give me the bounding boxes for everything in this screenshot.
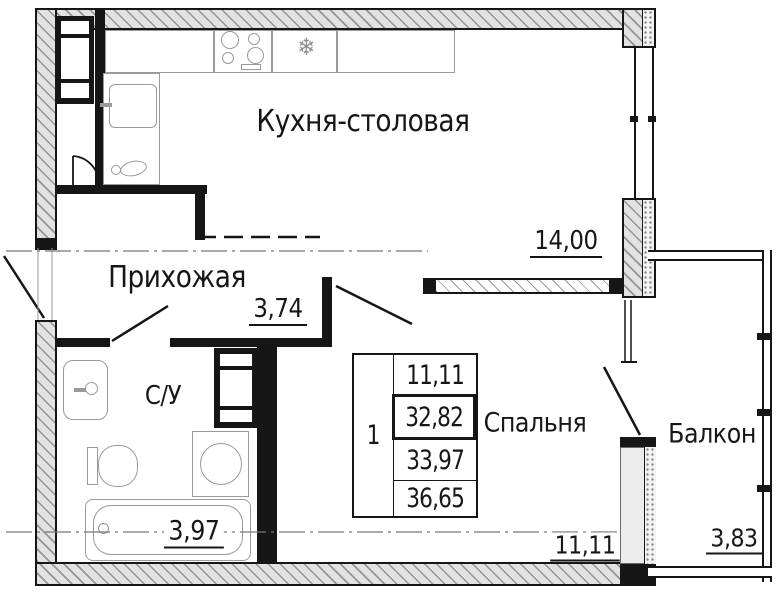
stove-burner — [221, 31, 239, 49]
toilet-bowl — [98, 445, 138, 487]
railing-post — [757, 333, 772, 340]
window-mullion-tick — [648, 116, 656, 122]
sink-drain-icon — [111, 165, 121, 175]
area-row-living: 11,11 — [394, 355, 476, 396]
insulation-strip — [642, 200, 654, 296]
balcony-panel-cap — [620, 437, 656, 447]
hallway-wall-stub — [195, 185, 205, 240]
stove-burner — [247, 47, 264, 64]
balcony-railing — [762, 250, 772, 582]
freezer-icon: ❄ — [297, 35, 314, 59]
balcony-panel-wall — [620, 447, 646, 564]
room-label-kitchen: Кухня-столовая — [256, 107, 469, 137]
area-row-reduced: 33,97 — [394, 440, 476, 480]
hallway-north-wall — [57, 185, 207, 194]
stove-burner — [248, 33, 260, 45]
shaft-panel — [61, 21, 89, 34]
washing-machine-drum — [200, 443, 242, 485]
shaft-panel — [220, 354, 252, 366]
counter-divider — [336, 30, 338, 73]
room-label-hallway: Прихожая — [108, 263, 246, 293]
insulation-strip — [642, 10, 654, 46]
wall-end-cap — [423, 278, 436, 294]
pier-mid-right — [622, 198, 656, 298]
entrance-jamb-top — [35, 240, 57, 250]
area-row-total: 36,65 — [394, 480, 476, 516]
area-label-balcony: 3,83 — [706, 526, 762, 555]
balcony-slab-bottom — [648, 566, 772, 578]
room-label-bathroom: С/У — [145, 383, 181, 409]
area-label-bedroom: 11,11 — [550, 533, 620, 562]
entrance-door-swing — [4, 256, 44, 318]
railing-post — [757, 485, 772, 492]
window-mullion-tick — [630, 116, 638, 122]
bedroom-door-swing — [336, 286, 412, 324]
balcony-door-swing — [604, 367, 640, 435]
exterior-wall-bottom — [35, 562, 622, 586]
stove-burner — [222, 52, 234, 64]
area-table: 1 11,11 32,82 33,97 36,65 — [352, 353, 478, 518]
area-label-kitchen: 14,00 — [530, 228, 602, 258]
bathroom-east-wall — [257, 345, 277, 564]
kitchen-window — [634, 48, 654, 198]
room-label-balcony: Балкон — [668, 421, 756, 448]
shaft-panel — [220, 410, 252, 422]
area-label-bathroom: 3,97 — [164, 518, 224, 549]
exterior-wall-left-upper — [35, 8, 57, 240]
bathroom-faucet-knob — [85, 382, 98, 395]
stove-vent — [241, 64, 261, 70]
shaft-panel — [220, 370, 252, 406]
exterior-wall-top — [35, 8, 628, 30]
area-row-no-balcony: 32,82 — [392, 394, 476, 440]
area-label-hallway: 3,74 — [249, 296, 307, 326]
toilet-tank — [87, 447, 98, 485]
insulation-strip — [644, 447, 656, 564]
shaft-panel — [61, 83, 89, 98]
exterior-wall-left-lower — [35, 320, 57, 586]
bathtub-drain — [98, 523, 109, 534]
rooms-count-cell: 1 — [354, 355, 394, 516]
floor-plan: ❄ 1 11,11 32,82 33,97 36,65 Кухня-ст — [0, 0, 781, 600]
railing-post — [757, 409, 772, 416]
wall-end-cap — [609, 278, 622, 294]
room-label-bedroom: Спальня — [484, 410, 587, 437]
shaft-panel — [61, 38, 89, 79]
bathroom-north-wall-left — [57, 338, 110, 347]
bedroom-west-wall-stub — [322, 277, 332, 347]
entrance-opening-jambs — [38, 248, 52, 320]
counter-divider — [213, 30, 215, 73]
kitchen-sink — [109, 84, 157, 128]
balcony-slab-top — [648, 250, 772, 261]
rooms-count: 1 — [367, 420, 380, 451]
bathroom-door-swing — [112, 306, 168, 341]
counter-divider — [271, 30, 273, 73]
pier-top-right — [622, 8, 656, 48]
kitchen-counter-top — [105, 30, 455, 73]
balcony-window-frame — [625, 300, 631, 363]
bathroom-north-wall-right — [170, 338, 332, 347]
kitchen-faucet — [100, 103, 112, 107]
bedroom-north-wall — [423, 278, 622, 294]
